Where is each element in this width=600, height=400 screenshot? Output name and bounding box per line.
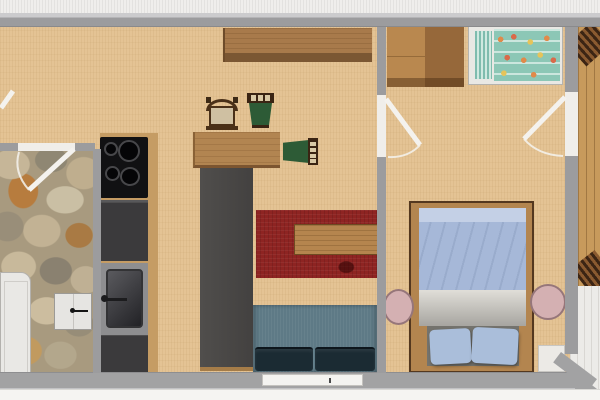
faucet-arm [107, 298, 127, 301]
kitchen-wall [93, 149, 101, 373]
bed-pillow-right [471, 327, 519, 365]
white-appliance-lid [4, 281, 28, 373]
sideboard-shadow [225, 53, 372, 62]
bed-pillow-left [429, 328, 472, 365]
sofa-cushion-left [255, 347, 313, 371]
balcony-chair-bottom [578, 250, 600, 290]
kitchen-sink-unit [100, 263, 148, 335]
crib-mattress [494, 29, 560, 81]
chair-backrest [247, 93, 274, 103]
nightstand-right [530, 284, 566, 320]
chair-slat [258, 95, 263, 101]
kitchen-cabinet-mid [100, 200, 148, 261]
sideboard [223, 28, 372, 62]
balcony-chair-top [578, 27, 600, 67]
chair-slat [310, 154, 316, 158]
wardrobe [387, 25, 464, 87]
cooktop [100, 137, 148, 198]
chair-green-right [283, 138, 318, 165]
top-wall [0, 13, 600, 27]
chair-rail [206, 126, 238, 130]
chair-backrest [308, 138, 318, 165]
hallway-door-opening [18, 143, 75, 151]
double-bed [409, 201, 534, 373]
chair-green-top [247, 93, 274, 128]
burner-icon [120, 167, 140, 186]
living-bedroom-wall [377, 27, 386, 373]
dining-table [193, 132, 280, 168]
chair-seat [209, 106, 235, 126]
room-divider [200, 168, 253, 371]
hall-cabinet-handle [74, 310, 88, 312]
bedroom-right-door-opening [565, 92, 578, 156]
chair-rail [252, 125, 269, 128]
bed-duvet [419, 208, 526, 292]
sofa [253, 305, 377, 372]
floor-plan [0, 0, 600, 400]
chair-slat [251, 95, 256, 101]
balcony-floor [578, 27, 600, 290]
coffee-table [294, 224, 378, 255]
bedroom-left-door-opening [377, 95, 386, 157]
kitchen-cabinet-bottom [100, 335, 148, 373]
burner-icon [104, 142, 118, 156]
nightstand-left [383, 289, 414, 325]
chair-slat [310, 142, 316, 146]
burner-icon [118, 140, 140, 162]
crib-blanket-roll [475, 31, 492, 79]
chair-slat [265, 95, 270, 101]
sofa-cushion-right [315, 347, 375, 371]
photo-bottom-margin [0, 389, 600, 400]
window-handle-mark [329, 378, 331, 383]
bed-blanket [419, 290, 526, 326]
chair-beige [206, 96, 238, 130]
chair-slat [310, 159, 316, 163]
photo-top-margin [0, 0, 600, 13]
bedroom-right-wall [565, 27, 578, 354]
chair-seat [249, 103, 272, 127]
crib [468, 24, 563, 85]
burner-icon [105, 166, 120, 181]
bottom-wall-window [262, 374, 363, 386]
chair-seat [283, 140, 309, 163]
wardrobe-shadow [387, 78, 464, 87]
white-appliance [0, 272, 31, 377]
chair-slat [310, 148, 316, 152]
hall-cabinet [54, 293, 92, 330]
